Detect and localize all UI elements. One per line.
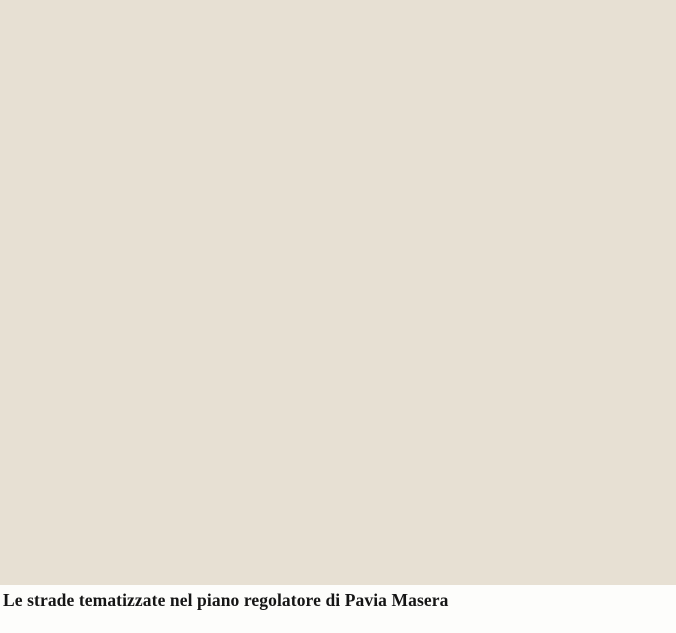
milan-plan-map — [0, 0, 676, 585]
figure-caption: Le strade tematizzate nel piano regolato… — [0, 585, 676, 633]
caption-text: Le strade tematizzate nel piano regolato… — [3, 590, 448, 610]
map-image — [0, 0, 676, 585]
figure: Le strade tematizzate nel piano regolato… — [0, 0, 676, 633]
